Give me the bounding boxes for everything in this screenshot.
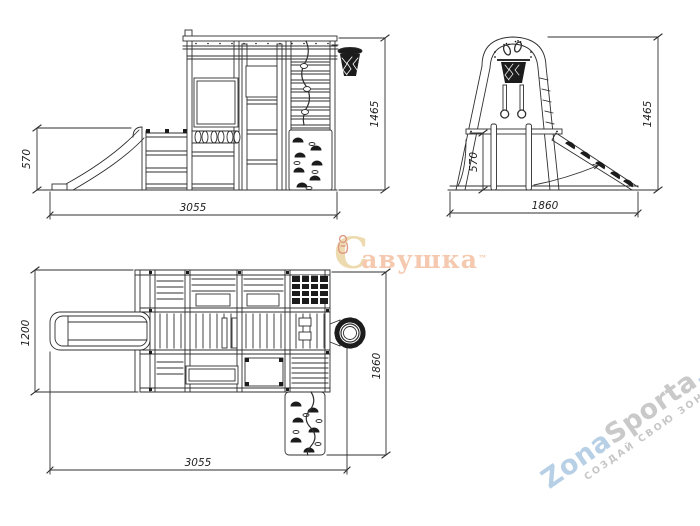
basket-net [340, 54, 360, 76]
plan-dim-depth-main: 1200 [20, 319, 32, 346]
side-view: 570 1860 1465 [447, 34, 662, 217]
plan-basketball-hoop [330, 320, 363, 346]
plan-climbing-wall [285, 392, 325, 455]
side-rock-ramp [552, 133, 638, 190]
side-dim-total-height: 1465 [642, 100, 654, 127]
front-view: 570 3055 1465 [21, 30, 389, 219]
front-dim-height: 570 [21, 149, 33, 169]
side-basket-and-rings [498, 60, 529, 118]
front-dim-width: 3055 [180, 202, 207, 214]
side-core [458, 78, 598, 190]
front-beam-bolts [195, 43, 329, 45]
blueprint-canvas: Савушка™ ZonaSporta.com СОЗДАЙ СВОЮ ЗОНУ… [0, 0, 700, 526]
side-dim-inner-height: 570 [468, 152, 480, 172]
front-panel-bay [192, 78, 240, 188]
plan-slide [50, 312, 150, 350]
plan-view: 1200 3055 1860 [20, 267, 390, 474]
plan-dim-width: 3055 [185, 457, 212, 469]
playground-drawing: 570 3055 1465 [0, 0, 700, 526]
front-basketball-hoop [332, 45, 362, 76]
front-swedish-wall [291, 41, 329, 128]
front-ladder-column [246, 66, 277, 164]
plan-top-band [157, 276, 328, 306]
plan-dim-depth-total: 1860 [371, 352, 383, 379]
side-dim-width: 1860 [532, 200, 559, 212]
front-slide [52, 127, 146, 190]
front-climbing-wall [289, 130, 332, 190]
front-lower-platform [146, 129, 188, 188]
front-dim-total-height: 1465 [369, 100, 381, 127]
gym-ring [501, 110, 509, 118]
gym-ring [518, 110, 526, 118]
footprints-logo-icon [502, 40, 522, 56]
